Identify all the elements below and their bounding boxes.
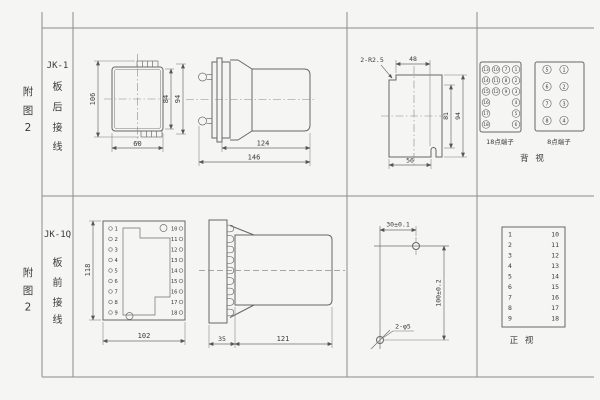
terminal-number: 7 xyxy=(505,67,508,73)
dim-total-length: 146 xyxy=(248,154,261,162)
dim-hole-spacing-h: 30±0.1 xyxy=(386,221,410,229)
plug-terminal-number: 6 xyxy=(115,279,118,285)
terminal-list-front-view: 1 2 3 4 5 6 7 8 9 10 11 12 13 14 15 16 1… xyxy=(502,227,565,346)
terminal-number: 17 xyxy=(483,111,489,117)
plug-terminal-number: 3 xyxy=(115,248,118,254)
list-number: 17 xyxy=(551,304,559,312)
list-number: 2 xyxy=(508,241,512,249)
plug-terminal-number: 12 xyxy=(171,248,178,254)
plug-terminal-number: 11 xyxy=(171,237,178,243)
terminal-number: 2 xyxy=(515,78,518,84)
dim-cutout-bottom: 56 xyxy=(406,157,414,165)
drawing-canvas: 附 图 2 JK-1 板 后 接 线 106 84 94 xyxy=(0,0,600,400)
plug-terminal-number: 16 xyxy=(171,290,178,296)
wiring-label-char: 线 xyxy=(53,140,63,153)
list-number: 13 xyxy=(551,262,559,270)
row2-header: 附 图 2 JK-1Q 板 前 接 线 xyxy=(23,230,71,326)
jk1-side-view: 124 146 xyxy=(186,58,316,166)
dim-body-length: 124 xyxy=(257,140,270,148)
plug-terminal-number: 13 xyxy=(171,258,178,264)
terminal-number: 10 xyxy=(493,67,499,73)
terminal-number: 5 xyxy=(545,67,548,73)
dim-cutout-top: 48 xyxy=(409,55,417,63)
list-number: 8 xyxy=(508,304,512,312)
list-number: 10 xyxy=(551,231,559,239)
jk1q-side-view: 35 121 xyxy=(199,220,345,348)
terminal-number: 6 xyxy=(545,84,548,90)
label-18pt-terminal: 18点端子 xyxy=(486,137,514,146)
plug-terminal-number: 8 xyxy=(115,300,118,306)
terminal-number: 7 xyxy=(545,101,548,107)
plug-terminal-number: 10 xyxy=(171,227,178,233)
plug-terminal-number: 5 xyxy=(115,269,118,275)
terminal-number: 4 xyxy=(562,118,565,124)
figure-label-char: 图 xyxy=(23,105,34,117)
terminal-number: 16 xyxy=(483,100,489,106)
note-hole-size: 2-φ5 xyxy=(395,323,411,331)
jk1-panel-cutout: 48 2-R2.5 81 94 56 xyxy=(360,55,467,169)
label-rear-view: 背 视 xyxy=(520,153,546,164)
model-label: JK-1 xyxy=(47,61,69,71)
list-number: 18 xyxy=(551,315,559,323)
terminal-number: 8 xyxy=(545,118,548,124)
plug-terminal-number: 18 xyxy=(171,311,178,317)
wiring-label-char: 后 xyxy=(53,102,63,114)
plug-terminal-number: 14 xyxy=(171,269,178,275)
list-number: 12 xyxy=(551,252,559,260)
jk1-front-view: 106 84 94 60 xyxy=(89,54,186,152)
list-number: 7 xyxy=(508,294,512,302)
terminal-blocks-rear-view: 13 10 7 1 14 11 8 2 15 12 9 3 16 4 17 5 … xyxy=(480,62,584,164)
terminal-number: 14 xyxy=(483,78,489,84)
list-number: 6 xyxy=(508,283,512,291)
wiring-label-char: 板 xyxy=(53,256,63,269)
wiring-label-char: 线 xyxy=(53,313,63,326)
terminal-number: 9 xyxy=(505,89,508,95)
plug-terminal-number: 9 xyxy=(115,311,118,317)
plug-terminal-number: 2 xyxy=(115,237,118,243)
terminal-number: 1 xyxy=(562,67,565,73)
terminal-number: 13 xyxy=(483,67,489,73)
list-number: 4 xyxy=(508,262,512,270)
dim-cutout-outer-h: 94 xyxy=(454,112,462,120)
terminal-number: 18 xyxy=(483,122,489,128)
terminal-number: 11 xyxy=(493,78,499,84)
list-number: 16 xyxy=(551,294,559,302)
drilling-plan: 30±0.1 2-φ5 100±0.2 xyxy=(371,221,449,350)
figure-label-char: 2 xyxy=(25,302,32,314)
plug-terminal-number: 1 xyxy=(115,227,118,233)
dim-plate-depth: 35 xyxy=(218,335,226,343)
list-number: 9 xyxy=(508,315,512,323)
figure-label-char: 图 xyxy=(23,285,34,297)
list-number: 1 xyxy=(508,231,512,239)
terminal-number: 1 xyxy=(515,67,518,73)
dim-body-length: 121 xyxy=(277,335,290,343)
wiring-label-char: 接 xyxy=(53,121,63,134)
terminal-number: 8 xyxy=(505,78,508,84)
list-number: 14 xyxy=(551,273,559,281)
list-number: 15 xyxy=(551,283,559,291)
plug-terminal-number: 15 xyxy=(171,279,178,285)
figure-2-sheet: 附 图 2 JK-1 板 后 接 线 106 84 94 xyxy=(0,0,600,400)
dim-width: 102 xyxy=(138,332,151,340)
list-number: 11 xyxy=(551,241,559,249)
note-corner-radius: 2-R2.5 xyxy=(360,56,384,64)
terminal-number: 2 xyxy=(562,84,565,90)
dim-cutout-inner-h: 81 xyxy=(442,112,450,120)
plug-terminal-number: 7 xyxy=(115,290,118,296)
wiring-label-char: 前 xyxy=(53,276,63,289)
figure-label-char: 附 xyxy=(23,85,34,98)
terminal-number: 3 xyxy=(515,89,518,95)
terminal-number: 15 xyxy=(483,89,489,95)
plug-terminal-number: 17 xyxy=(171,300,178,306)
jk1q-front-view: 1 2 3 4 5 6 7 8 9 10 11 12 13 14 15 16 1… xyxy=(84,221,185,345)
list-number: 5 xyxy=(508,273,512,281)
terminal-number: 4 xyxy=(515,100,518,106)
plug-terminal-number: 4 xyxy=(115,258,119,264)
dim-body-height: 84 xyxy=(162,95,170,103)
terminal-number: 3 xyxy=(562,101,565,107)
wiring-label-char: 接 xyxy=(53,296,63,309)
dim-width: 60 xyxy=(133,140,141,148)
label-front-view: 正 视 xyxy=(510,335,536,346)
figure-label-char: 2 xyxy=(25,122,32,134)
row1-header: 附 图 2 JK-1 板 后 接 线 xyxy=(23,61,69,153)
label-8pt-terminal: 8点端子 xyxy=(547,137,571,146)
terminal-number: 5 xyxy=(515,111,518,117)
dim-outer-height: 94 xyxy=(174,95,182,103)
model-label: JK-1Q xyxy=(44,230,71,240)
figure-label-char: 附 xyxy=(23,266,34,279)
wiring-label-char: 板 xyxy=(53,80,63,93)
terminal-number: 12 xyxy=(493,89,499,95)
dim-hole-spacing-v: 100±0.2 xyxy=(435,279,443,306)
dim-total-height: 106 xyxy=(89,93,97,106)
dim-height: 118 xyxy=(84,264,92,277)
terminal-number: 6 xyxy=(515,122,518,128)
list-number: 3 xyxy=(508,252,512,260)
